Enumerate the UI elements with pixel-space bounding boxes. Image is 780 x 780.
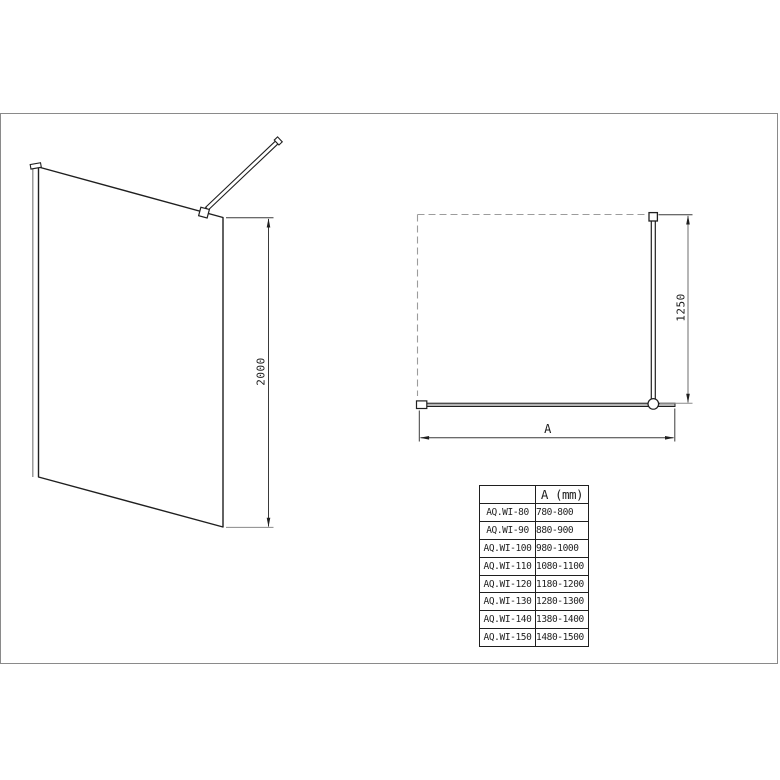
dim-label-width: A [528, 422, 568, 437]
side-view-3d [30, 137, 282, 527]
glass-panel-top-view [418, 403, 675, 406]
range-cell: 1480-1500 [536, 629, 589, 647]
range-cell: 880-900 [536, 521, 589, 539]
dim-label-bar-length: 1250 [674, 280, 689, 336]
table-row: AQ.WI-110 1080-1100 [480, 557, 589, 575]
model-cell: AQ.WI-80 [480, 504, 536, 522]
arrow-right-icon [665, 436, 674, 440]
range-cell: 980-1000 [536, 539, 589, 557]
model-cell: AQ.WI-110 [480, 557, 536, 575]
arrow-left-icon [420, 436, 429, 440]
model-cell: AQ.WI-150 [480, 629, 536, 647]
table-row: AQ.WI-130 1280-1300 [480, 593, 589, 611]
arrow-up-icon [686, 215, 690, 224]
range-cell: 1080-1100 [536, 557, 589, 575]
glass-panel-3d [39, 167, 224, 527]
header-width-cell: A (mm) [536, 486, 589, 504]
drawing-canvas: 2000 1250 A A (mm) AQ.WI-80 780-800 AQ.W… [0, 0, 780, 780]
range-cell: 1280-1300 [536, 593, 589, 611]
table-header-row: A (mm) [480, 486, 589, 504]
wall-profile-top-view [417, 401, 427, 409]
table-row: AQ.WI-80 780-800 [480, 504, 589, 522]
arrow-up-icon [267, 218, 271, 227]
bar-glass-clamp [199, 207, 210, 218]
table-row: AQ.WI-140 1380-1400 [480, 611, 589, 629]
model-cell: AQ.WI-100 [480, 539, 536, 557]
header-model-cell [480, 486, 536, 504]
size-table: A (mm) AQ.WI-80 780-800 AQ.WI-90 880-900… [479, 485, 589, 647]
model-cell: AQ.WI-130 [480, 593, 536, 611]
dim-label-height: 2000 [254, 344, 269, 400]
range-cell: 780-800 [536, 504, 589, 522]
support-bar-body [206, 141, 278, 210]
table-row: AQ.WI-100 980-1000 [480, 539, 589, 557]
table-row: AQ.WI-120 1180-1200 [480, 575, 589, 593]
table-row: AQ.WI-90 880-900 [480, 521, 589, 539]
top-view [417, 213, 693, 442]
range-cell: 1380-1400 [536, 611, 589, 629]
arrow-down-icon [686, 394, 690, 403]
range-cell: 1180-1200 [536, 575, 589, 593]
bar-wall-bracket-square [649, 213, 657, 221]
bar-glass-clamp-top-view [648, 399, 659, 410]
technical-drawing [0, 0, 780, 780]
model-cell: AQ.WI-140 [480, 611, 536, 629]
support-bar-3d [205, 137, 283, 211]
table-row: AQ.WI-150 1480-1500 [480, 629, 589, 647]
model-cell: AQ.WI-90 [480, 521, 536, 539]
model-cell: AQ.WI-120 [480, 575, 536, 593]
arrow-down-icon [267, 518, 271, 527]
